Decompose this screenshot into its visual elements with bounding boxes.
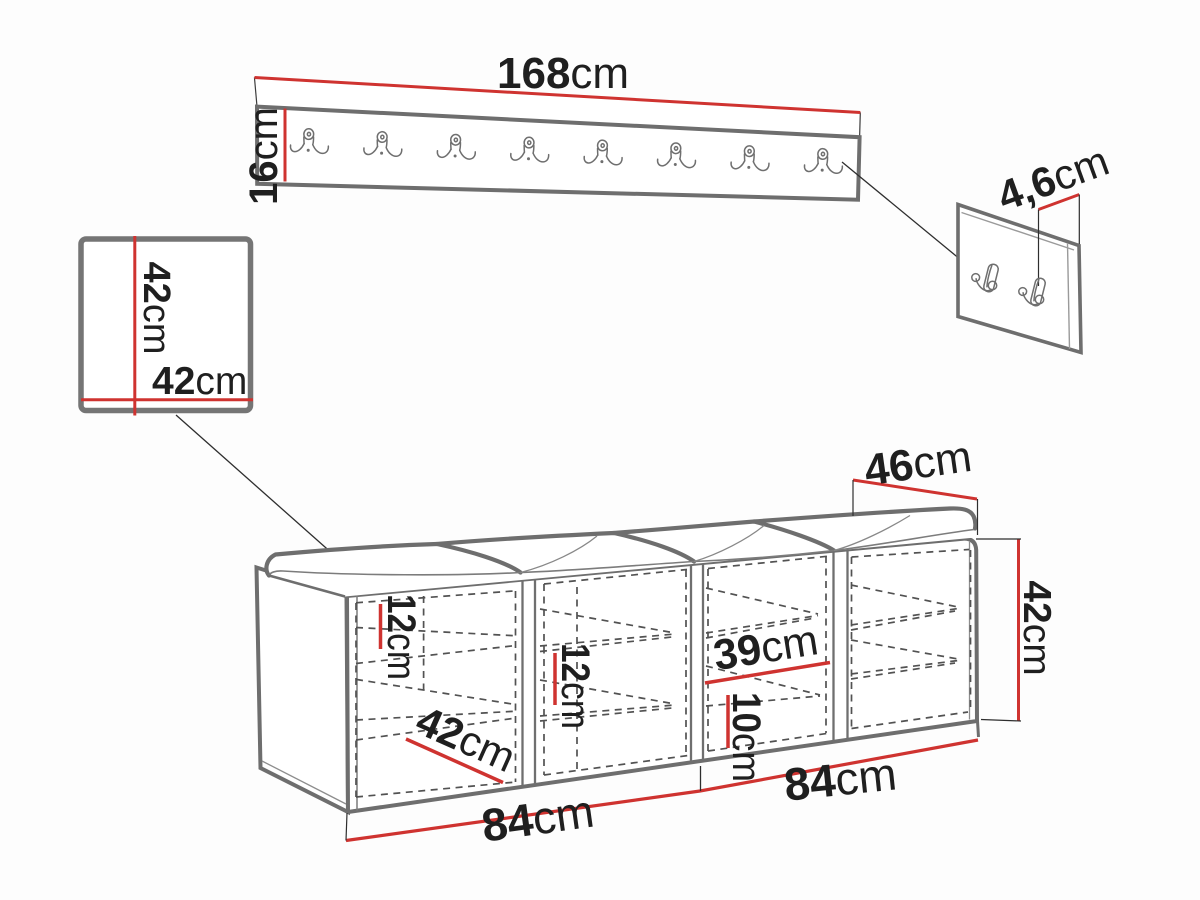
svg-text:12cm: 12cm — [554, 643, 599, 729]
svg-text:42cm: 42cm — [135, 262, 177, 355]
svg-text:10cm: 10cm — [724, 692, 769, 782]
svg-text:16cm: 16cm — [242, 107, 286, 205]
svg-text:12cm: 12cm — [380, 594, 425, 680]
svg-text:42cm: 42cm — [152, 360, 247, 403]
svg-text:42cm: 42cm — [1015, 580, 1058, 675]
svg-text:168cm: 168cm — [497, 49, 629, 98]
